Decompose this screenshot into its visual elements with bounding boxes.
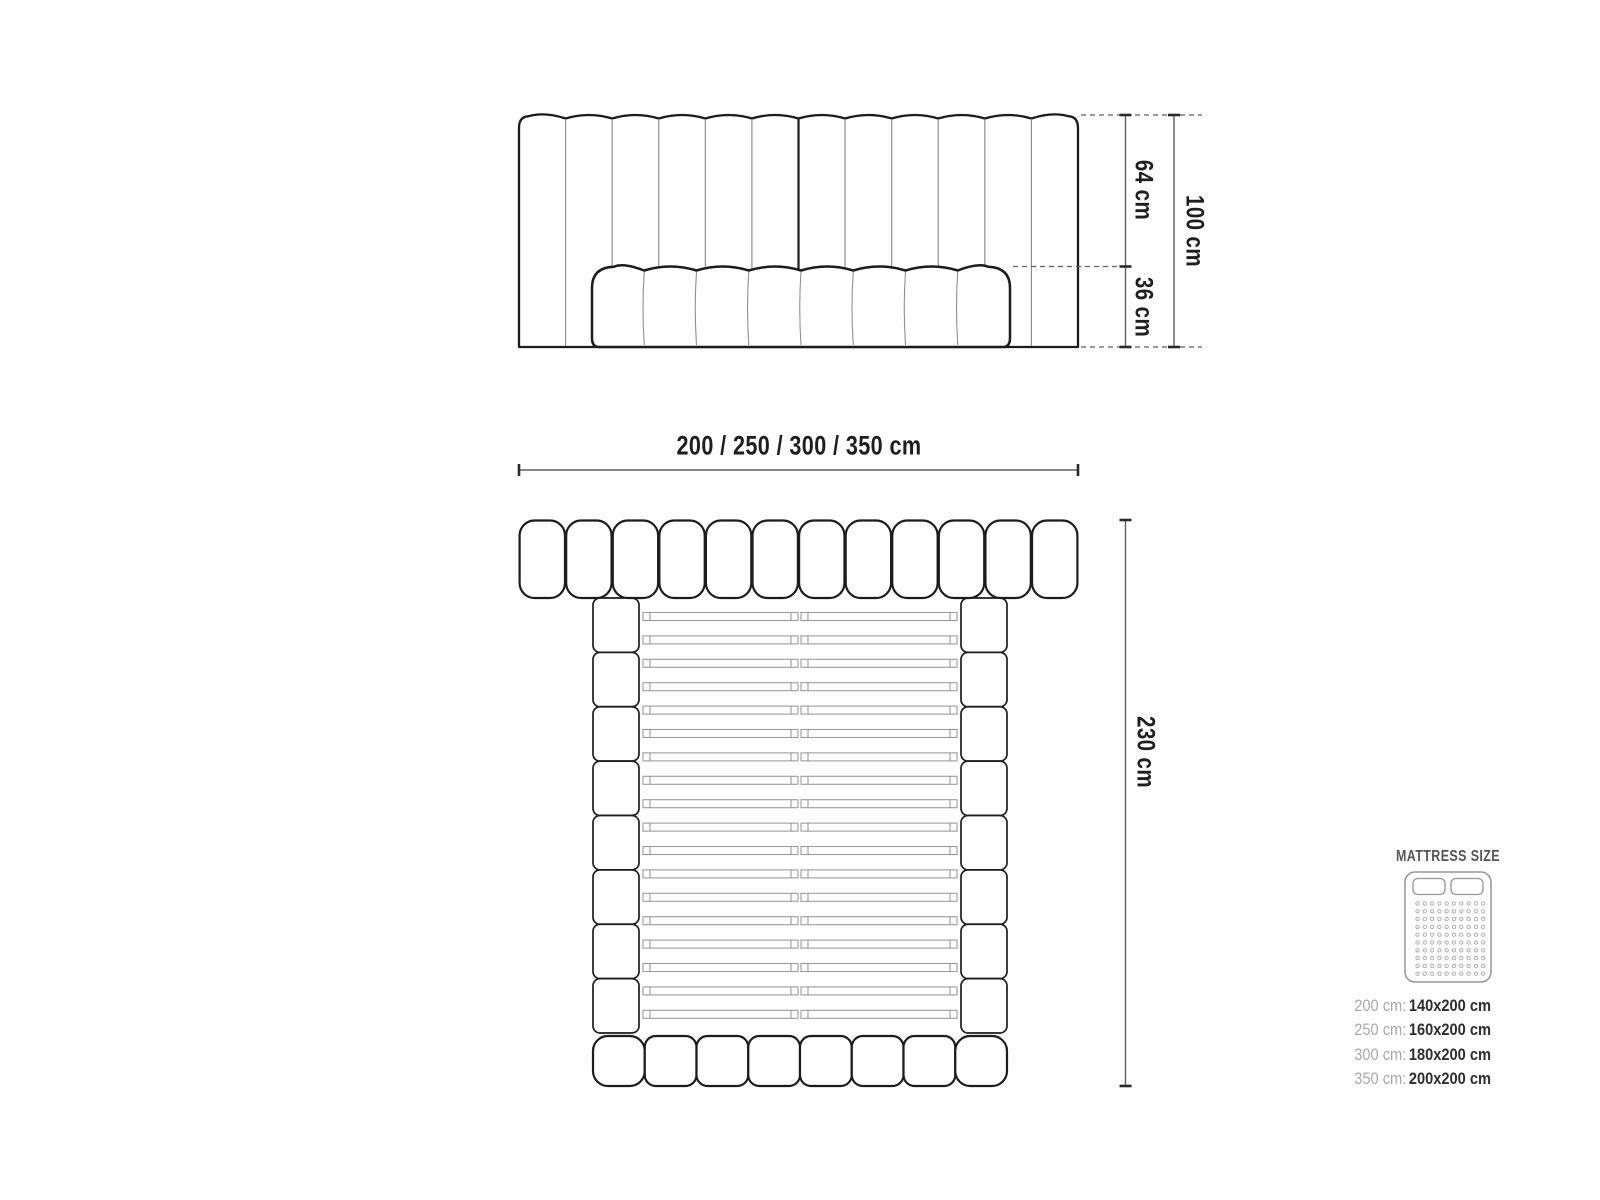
mattress-size-value: 180x200 cm [1409, 1045, 1491, 1064]
dim-label-bed-widths: 200 / 250 / 300 / 350 cm [677, 431, 922, 462]
bed-width-label: 350 cm: [1354, 1069, 1406, 1088]
legend-title: MATTRESS SIZE [1396, 848, 1500, 866]
dim-label-bed-length: 230 cm [1131, 716, 1160, 788]
mattress-size-row: 250 cm:160x200 cm [1318, 1018, 1491, 1042]
mattress-size-row: 300 cm:180x200 cm [1318, 1043, 1491, 1067]
dim-label-headboard-total: 100 cm [1180, 195, 1209, 267]
bed-dimension-diagram: 64 cm 36 cm 100 cm 200 / 250 / 300 / 350… [0, 0, 1600, 1200]
dim-label-headboard-upper: 64 cm [1129, 160, 1158, 220]
mattress-size-value: 140x200 cm [1409, 996, 1491, 1015]
dim-label-headboard-lower: 36 cm [1129, 277, 1158, 337]
mattress-icon [1405, 872, 1491, 982]
mattress-size-value: 160x200 cm [1409, 1020, 1491, 1039]
mattress-size-list: 200 cm:140x200 cm 250 cm:160x200 cm 300 … [1290, 994, 1491, 1091]
bed-width-label: 250 cm: [1354, 1020, 1406, 1039]
plan-view-drawing [520, 521, 1078, 1087]
bed-width-label: 300 cm: [1354, 1045, 1406, 1064]
mattress-size-row: 200 cm:140x200 cm [1318, 994, 1491, 1018]
front-view-drawing [519, 114, 1078, 347]
bed-width-label: 200 cm: [1354, 996, 1406, 1015]
mattress-size-row: 350 cm:200x200 cm [1318, 1067, 1491, 1091]
mattress-size-value: 200x200 cm [1409, 1069, 1491, 1088]
